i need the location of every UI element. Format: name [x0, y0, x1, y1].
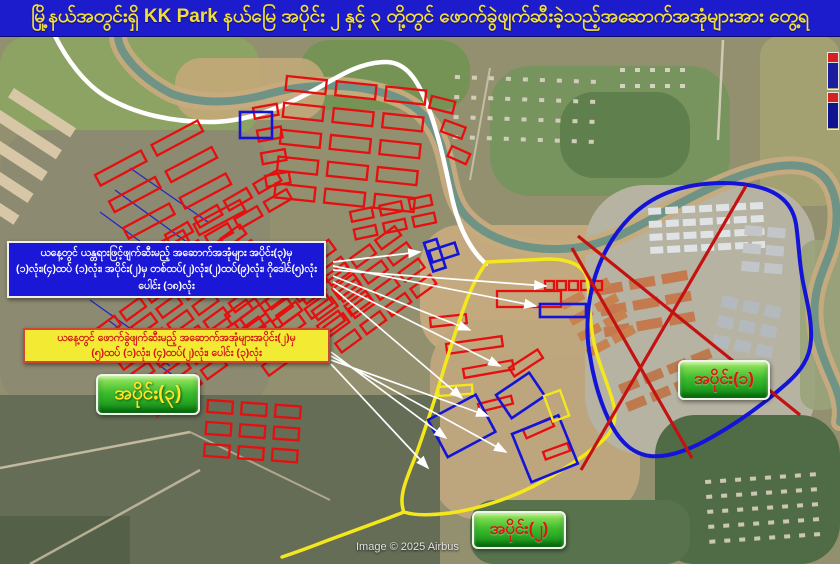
blue-info-line-1: ယနေ့တွင် ယန္တရားဖြင့်ဖျက်ဆီးမည့် အဆောက်အ… [9, 245, 324, 261]
map-attribution: Image © 2025 Airbus [356, 541, 459, 553]
yellow-info-line-2: (၅)ထပ် (၁)လုံး၊ (၄)ထပ်(၂)လုံး၊ ပေါင်း (၃… [25, 346, 328, 361]
blue-info-line-3: ပေါင်း (၁၈)လုံး [9, 278, 324, 294]
flag-blue-field [828, 62, 838, 88]
page-title: မြို့နယ်အတွင်းရှိ KK Park နယ်မြေ အပိုင်း… [31, 4, 809, 32]
screenshot-root: မြို့နယ်အတွင်းရှိ KK Park နယ်မြေ အပိုင်း… [0, 0, 840, 564]
title-bar: မြို့နယ်အတွင်းရှိ KK Park နယ်မြေ အပိုင်း… [0, 0, 840, 37]
zone-label-3: အပိုင်း(၃) [96, 374, 200, 415]
yellow-info-line-1: ယနေ့တွင် ဖောက်ခွဲဖျက်ဆီးမည့် အဆောက်အအုံမ… [25, 331, 328, 346]
blue-info-box: ယနေ့တွင် ယန္တရားဖြင့်ဖျက်ဆီးမည့် အဆောက်အ… [7, 241, 326, 298]
zone-label-1-text: အပိုင်း(၁) [694, 368, 754, 393]
zone-label-2: အပိုင်း(၂) [472, 511, 566, 549]
flag-icon [827, 52, 839, 90]
zone-label-1: အပိုင်း(၁) [678, 360, 770, 400]
flag-icon [827, 92, 839, 130]
flag-red-stripe [828, 93, 838, 102]
blue-info-line-2: (၁)လုံး၊(၄)ထပ် (၁)လုံး၊ အပိုင်း(၂)မှ တစ်… [9, 261, 324, 277]
zone-label-2-text: အပိုင်း(၂) [490, 518, 549, 543]
flag-red-stripe [828, 53, 838, 62]
zone-label-3-text: အပိုင်း(၃) [115, 381, 182, 409]
flag-blue-field [828, 102, 838, 128]
yellow-info-box: ယနေ့တွင် ဖောက်ခွဲဖျက်ဆီးမည့် အဆောက်အအုံမ… [23, 328, 330, 363]
